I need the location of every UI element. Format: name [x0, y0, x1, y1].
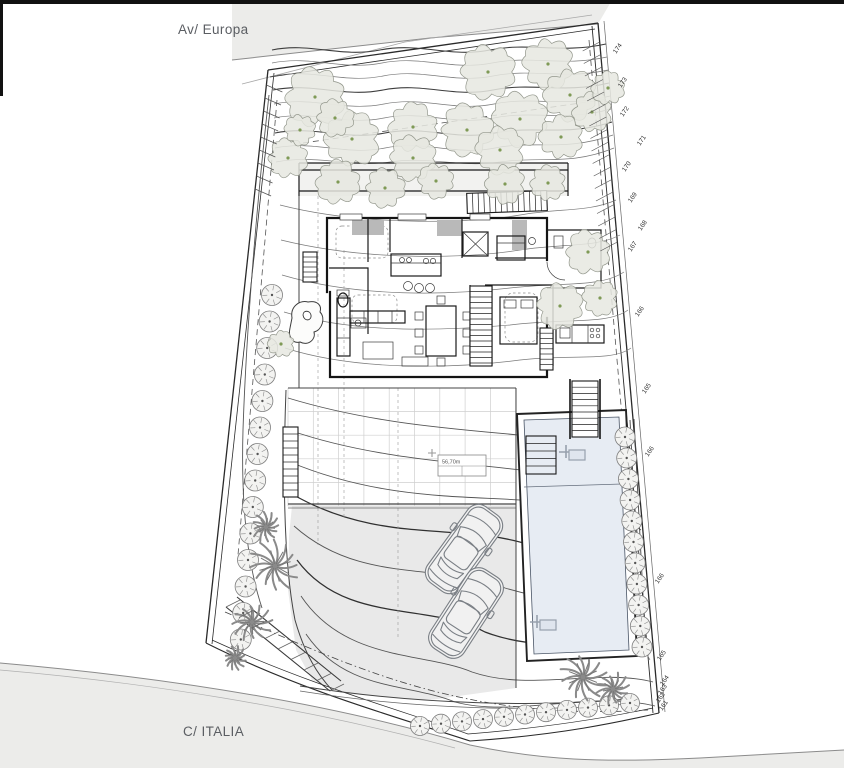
shrub-icon	[617, 448, 637, 468]
elevation-label: 166	[644, 445, 656, 458]
shrub-icon	[558, 700, 577, 719]
shrub-icon	[632, 637, 652, 657]
stair	[540, 328, 553, 370]
kitchen-island	[391, 254, 441, 293]
elevation-label: 165	[641, 382, 653, 395]
shrub-icon	[254, 364, 275, 385]
palm-tree-icon	[561, 656, 607, 700]
annotation-box: 56,70m	[428, 449, 486, 476]
site-plan-canvas: 56,70m 174173172171170169168167166165166…	[0, 0, 844, 768]
tree-icon	[582, 280, 617, 316]
sofa	[337, 298, 405, 356]
tree-icon	[460, 44, 515, 100]
shrub-icon	[474, 710, 493, 729]
elevation-label: 165	[656, 649, 668, 662]
stair	[470, 286, 492, 366]
shrub-icon	[242, 497, 263, 518]
elevation-label: 169	[627, 191, 639, 204]
shrub-icon	[630, 616, 650, 636]
shrub-icon	[516, 705, 535, 724]
shrub-icon	[625, 553, 645, 573]
dining-set	[415, 296, 471, 366]
shrub-icon	[620, 490, 640, 510]
elevation-label: 166	[654, 572, 666, 585]
site-plan-drawing: 56,70m 174173172171170169168167166165166…	[0, 0, 844, 768]
outdoor-kitchen	[556, 325, 604, 343]
elevation-label: 172	[619, 105, 631, 118]
shrub-icon	[622, 511, 642, 531]
console	[402, 357, 428, 366]
shrub-icon	[411, 717, 430, 736]
elevation-label: 168	[637, 219, 649, 232]
stair	[283, 427, 298, 497]
shrub-icon	[615, 427, 635, 447]
shrub-icon	[250, 417, 271, 438]
tree-icon	[267, 330, 294, 357]
shrub-icon	[495, 707, 514, 726]
shrub-icon	[247, 444, 268, 465]
elevation-label: 173	[617, 76, 629, 89]
shrub-icon	[621, 694, 640, 713]
elevation-label: 166	[634, 305, 646, 318]
shrub-icon	[235, 576, 256, 597]
shrub-icon	[629, 595, 649, 615]
street-label-av-europa: Av/ Europa	[178, 22, 249, 37]
wardrobe-block	[437, 220, 462, 236]
stair	[303, 252, 317, 282]
shrub-icon	[537, 703, 556, 722]
shrub-icon	[238, 550, 259, 571]
elevation-label: 174	[612, 42, 624, 55]
coffee-table	[363, 342, 393, 359]
paving-grid	[288, 388, 516, 506]
shrub-icon	[453, 712, 472, 731]
area-label: 56,70m	[442, 460, 461, 466]
garden-pond	[289, 302, 322, 344]
elevation-label: 170	[621, 160, 633, 173]
shrub-icon	[259, 311, 280, 332]
stair	[572, 381, 598, 437]
shrub-icon	[262, 285, 283, 306]
shrub-icon	[618, 469, 638, 489]
street-label-c-italia: C/ ITALIA	[183, 724, 244, 739]
shrub-icon	[627, 574, 647, 594]
palm-tree-icon	[226, 646, 246, 670]
shrub-icon	[624, 532, 644, 552]
elevation-label: 167	[627, 240, 639, 253]
elevation-label: 171	[636, 134, 648, 147]
shrub-icon	[245, 470, 266, 491]
shrub-icon	[230, 629, 251, 650]
door-swing	[547, 262, 565, 280]
shrub-icon	[432, 714, 451, 733]
tree-icon	[536, 283, 583, 330]
shrub-icon	[252, 391, 273, 412]
